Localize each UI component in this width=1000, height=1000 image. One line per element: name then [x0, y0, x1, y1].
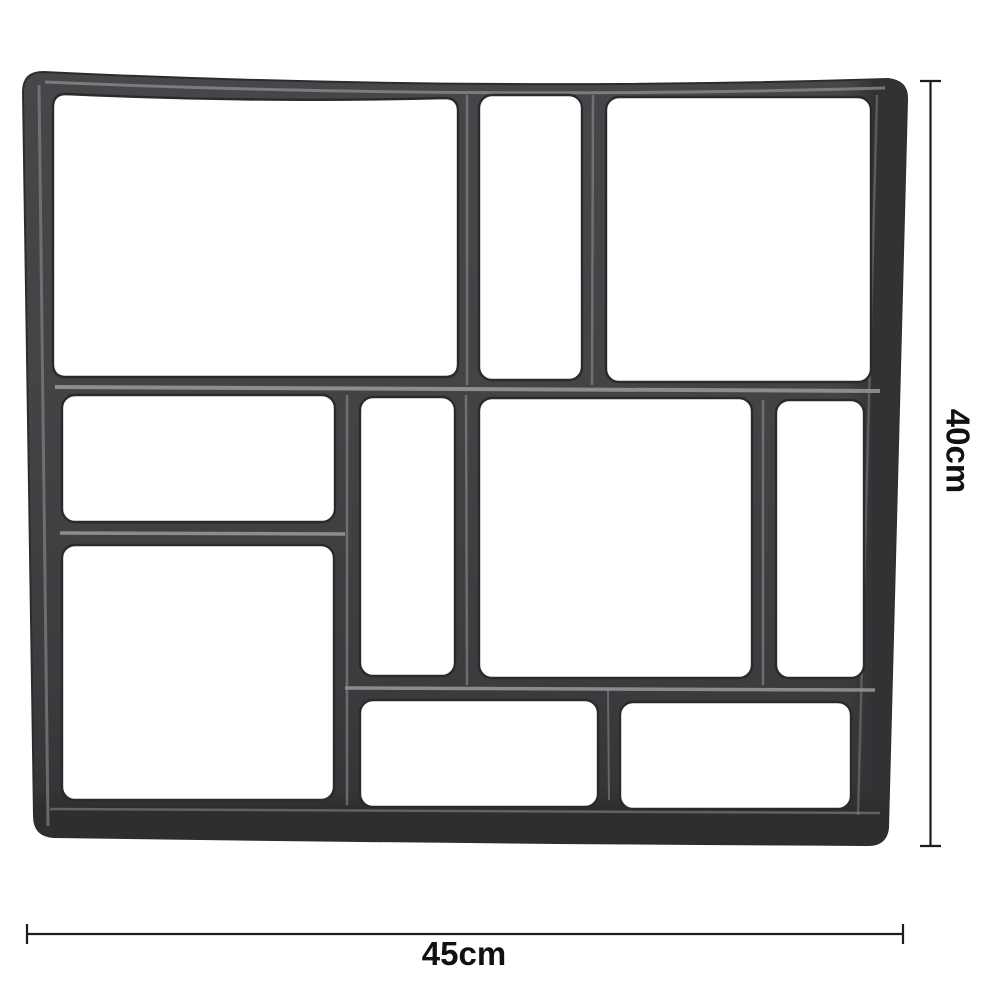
- svg-text:40cm: 40cm: [939, 409, 976, 493]
- svg-text:45cm: 45cm: [422, 935, 506, 972]
